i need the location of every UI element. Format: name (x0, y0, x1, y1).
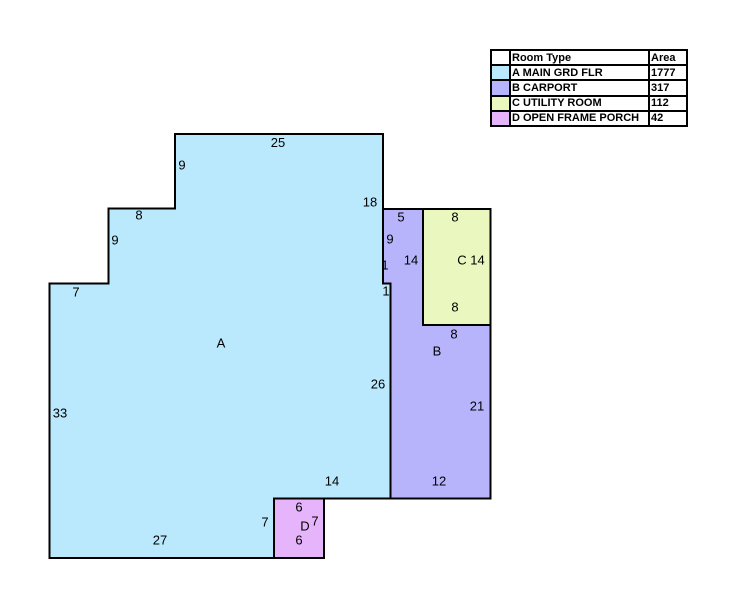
svg-text:B: B (433, 344, 442, 359)
svg-text:6: 6 (295, 500, 302, 515)
svg-text:9: 9 (178, 158, 185, 173)
svg-text:C 14: C 14 (457, 253, 484, 268)
svg-text:26: 26 (371, 377, 385, 392)
svg-text:33: 33 (53, 406, 67, 421)
svg-text:6: 6 (295, 533, 302, 548)
svg-text:7: 7 (311, 514, 318, 529)
svg-text:A: A (217, 336, 226, 351)
svg-text:12: 12 (432, 474, 446, 489)
svg-text:1: 1 (381, 258, 388, 273)
svg-text:9: 9 (111, 233, 118, 248)
svg-text:8: 8 (450, 327, 457, 342)
svg-text:D: D (300, 519, 309, 534)
svg-text:14: 14 (404, 253, 418, 268)
svg-text:8: 8 (451, 300, 458, 315)
svg-text:25: 25 (271, 135, 285, 150)
svg-text:21: 21 (470, 399, 484, 414)
svg-text:5: 5 (397, 210, 404, 225)
svg-text:8: 8 (135, 208, 142, 223)
svg-text:7: 7 (72, 285, 79, 300)
svg-text:27: 27 (153, 533, 167, 548)
svg-text:8: 8 (451, 210, 458, 225)
svg-text:14: 14 (325, 474, 339, 489)
svg-text:1: 1 (382, 284, 389, 299)
svg-text:18: 18 (363, 195, 377, 210)
svg-text:7: 7 (261, 515, 268, 530)
svg-text:9: 9 (386, 232, 393, 247)
